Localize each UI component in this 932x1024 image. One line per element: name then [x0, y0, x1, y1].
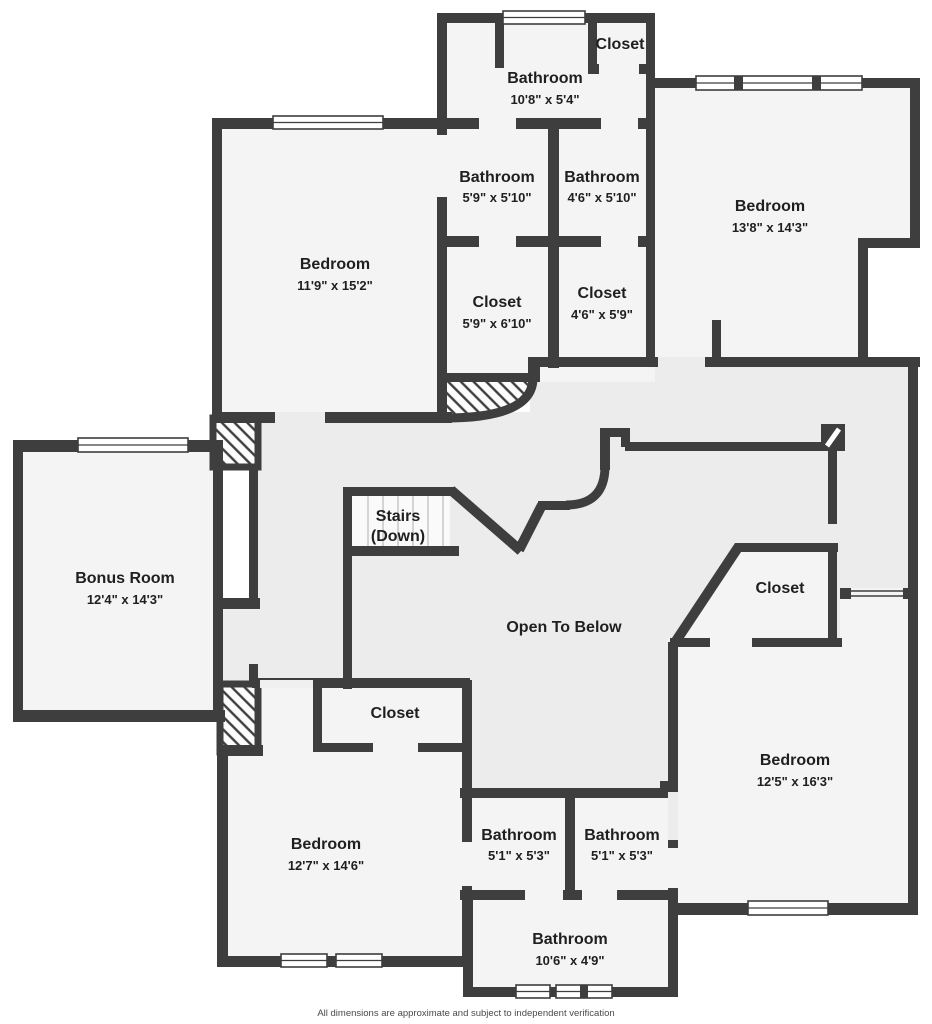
room-dims-closet-59: 5'9" x 6'10": [462, 316, 531, 331]
window-symbol: [281, 954, 327, 967]
door-opening: [249, 611, 258, 664]
window-symbol: [273, 116, 383, 129]
room-label-closet-top: Closet: [596, 36, 646, 53]
wall-segment: [437, 197, 447, 423]
room-dims-bedroom-bl: 12'7" x 14'6": [288, 858, 364, 873]
wall-segment: [213, 440, 223, 722]
hatch-chase-2: [220, 684, 258, 752]
wall-segment: [625, 442, 828, 451]
room-dims-bedroom-tr: 13'8" x 14'3": [732, 220, 808, 235]
floor-bath-column: [437, 118, 655, 382]
wall-segment: [908, 363, 918, 915]
wall-segment: [910, 78, 920, 248]
room-dims-closet-46: 4'6" x 5'9": [571, 307, 633, 322]
wall-segment: [462, 680, 472, 842]
wall-segment: [670, 638, 842, 647]
door-opening: [479, 236, 516, 247]
open-to-below-label: Open To Below: [506, 619, 622, 636]
door-opening: [599, 64, 639, 74]
window-symbol: [748, 901, 828, 915]
wall-segment: [463, 895, 473, 997]
door-opening: [525, 890, 563, 900]
door-opening: [373, 743, 418, 752]
room-dims-bathroom-b2: 5'1" x 5'3": [591, 848, 653, 863]
room-dims-bathroom-b1: 5'1" x 5'3": [488, 848, 550, 863]
wall-segment: [343, 487, 455, 496]
room-label-bedroom-br: Bedroom: [760, 752, 830, 769]
window-symbol: [78, 438, 188, 452]
room-dims-bathroom-top: 10'8" x 5'4": [510, 92, 579, 107]
door-opening: [582, 890, 617, 900]
room-label-closet-bottom: Closet: [371, 705, 421, 722]
wall-segment: [437, 373, 537, 382]
wall-segment: [828, 448, 837, 524]
wall-segment: [712, 320, 721, 360]
window-symbol: [516, 985, 550, 998]
shaft-gap: [223, 464, 251, 604]
wall-segment: [313, 678, 322, 752]
wall-segment: [13, 710, 225, 722]
room-label-bedroom-tl: Bedroom: [300, 256, 370, 273]
wall-segment: [828, 543, 837, 647]
wall-segment: [565, 788, 575, 900]
wall-segment: [212, 118, 222, 423]
room-label-bathroom-46: Bathroom: [564, 169, 640, 186]
wall-segment: [668, 642, 678, 792]
door-opening: [601, 236, 638, 247]
wall-segment: [249, 464, 258, 604]
door-opening: [275, 412, 325, 423]
stairs-label: Stairs: [376, 508, 421, 525]
wall-segment: [735, 543, 838, 552]
room-label-bonus: Bonus Room: [75, 570, 175, 587]
room-dims-bedroom-br: 12'5" x 16'3": [757, 774, 833, 789]
window-symbol: [556, 985, 612, 998]
door-opening: [479, 118, 516, 129]
room-label-bedroom-tr: Bedroom: [735, 198, 805, 215]
wall-segment: [313, 678, 470, 688]
window-symbol: [696, 76, 862, 90]
room-dims-bonus: 12'4" x 14'3": [87, 592, 163, 607]
wall-segment: [13, 440, 23, 722]
door-opening: [828, 524, 837, 543]
room-label-bathroom-b1: Bathroom: [481, 827, 557, 844]
door-opening: [437, 135, 447, 197]
disclaimer-text: All dimensions are approximate and subje…: [317, 1008, 614, 1019]
wall-segment: [217, 745, 228, 967]
room-label-bathroom-59: Bathroom: [459, 169, 535, 186]
window-symbol: [336, 954, 382, 967]
door-opening: [710, 638, 752, 647]
wall-segment: [343, 546, 459, 556]
room-label-bathroom-b2: Bathroom: [584, 827, 660, 844]
room-dims-bathroom-bot: 10'6" x 4'9": [535, 953, 604, 968]
room-dims-bathroom-59: 5'9" x 5'10": [462, 190, 531, 205]
door-opening: [260, 680, 313, 688]
door-opening: [462, 842, 472, 886]
wall-segment: [437, 13, 447, 127]
wall-segment: [858, 238, 868, 365]
wall-segment: [660, 781, 672, 792]
wall-segment: [212, 412, 452, 423]
room-label-bedroom-bl: Bedroom: [291, 836, 361, 853]
room-label-bathroom-top: Bathroom: [507, 70, 583, 87]
door-opening: [851, 588, 903, 599]
room-dims-bedroom-tl: 11'9" x 15'2": [297, 278, 373, 293]
wall-segment: [460, 890, 678, 900]
room-label-closet-46: Closet: [578, 285, 628, 302]
door-opening: [668, 792, 678, 840]
floor-plan-drawing: Closet Bathroom 10'8" x 5'4" Bathroom 5'…: [0, 0, 932, 1024]
door-opening: [658, 357, 705, 367]
window-symbol: [503, 11, 585, 24]
door-opening: [668, 848, 678, 888]
room-label-bathroom-bot: Bathroom: [532, 931, 608, 948]
room-dims-bathroom-46: 4'6" x 5'10": [567, 190, 636, 205]
stairs-sublabel: (Down): [371, 528, 425, 545]
wall-segment: [218, 598, 260, 609]
room-label-closet-59: Closet: [473, 294, 523, 311]
wall-segment: [343, 546, 352, 689]
floor-plan-page: Closet Bathroom 10'8" x 5'4" Bathroom 5'…: [0, 0, 932, 1024]
door-opening: [601, 118, 638, 129]
room-label-closet-right: Closet: [756, 580, 806, 597]
